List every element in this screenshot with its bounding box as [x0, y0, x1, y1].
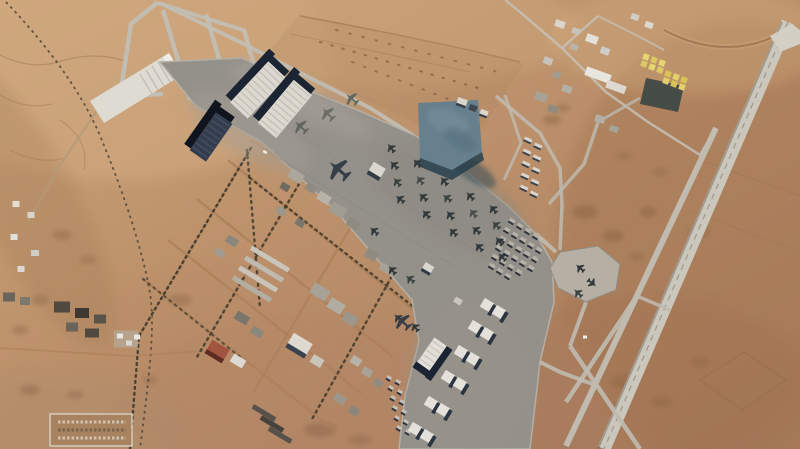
screenshot-root [0, 0, 800, 449]
satellite-scene-svg [0, 0, 800, 449]
satellite-image [0, 0, 800, 449]
